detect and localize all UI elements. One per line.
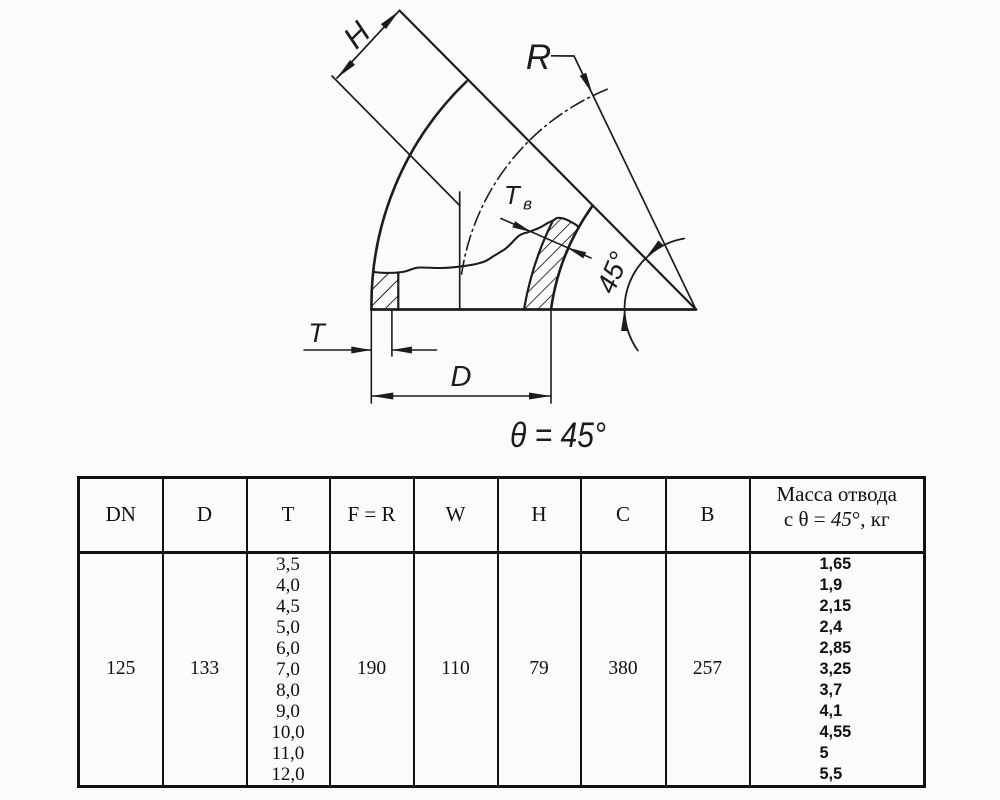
- svg-text:T: T: [504, 180, 522, 210]
- svg-text:T: T: [308, 318, 327, 348]
- svg-text:R: R: [526, 38, 551, 77]
- svg-text:D: D: [451, 361, 472, 393]
- svg-text:H: H: [337, 14, 378, 55]
- svg-text:в: в: [523, 195, 532, 214]
- svg-text:θ = 45°: θ = 45°: [510, 416, 606, 455]
- svg-text:45°: 45°: [590, 247, 635, 297]
